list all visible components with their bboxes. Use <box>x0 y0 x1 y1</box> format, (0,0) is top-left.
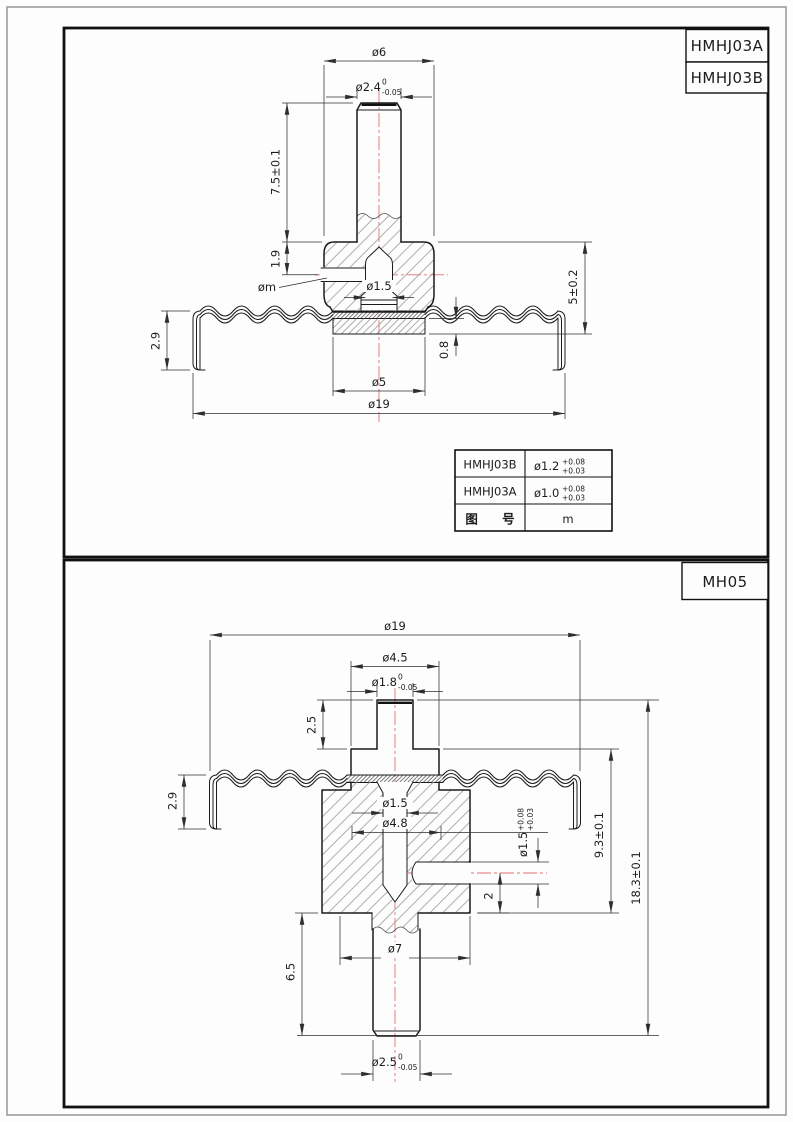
dim-dia15-side-upper-tol: +0.08 <box>517 808 526 831</box>
disc-left-rim <box>193 311 205 370</box>
table-value-1-upper-tol: +0.08 <box>562 458 585 467</box>
dim-6_5: 6.5 <box>284 913 319 1036</box>
table-value-2-lower-tol: +0.03 <box>562 494 585 503</box>
spec-table: HMHJ03B ø1.2 +0.08 +0.03 HMHJ03A ø1.0 +0… <box>455 450 612 531</box>
drawing-sheet: HMHJ03A HMHJ03B <box>0 0 793 1122</box>
title-mh05: MH05 <box>702 573 747 591</box>
dim-2_9: 2.9 <box>166 775 207 829</box>
table-value-1: ø1.2 <box>534 459 559 473</box>
dim-dia24-lower-tol: -0.05 <box>382 88 402 97</box>
table-value-2: ø1.0 <box>534 486 559 500</box>
dim-5-label: 5±0.2 <box>566 269 580 304</box>
dim-dia24-label: ø2.4 <box>356 80 381 94</box>
dim-2_5: 2.5 <box>305 700 374 749</box>
dim-dia15-label: ø1.5 <box>366 279 391 293</box>
dim-9_3-label: 9.3±0.1 <box>592 812 606 858</box>
dim-dia19-label: ø19 <box>368 397 390 411</box>
dim-dia18-label: ø1.8 <box>372 675 397 689</box>
dim-dia18-lower-tol: -0.05 <box>398 683 418 692</box>
panel-bottom: MH05 <box>64 560 768 1107</box>
dim-dia25-lower-tol: -0.05 <box>398 1063 418 1072</box>
dim-dia7-label: ø7 <box>388 942 402 956</box>
bottom-title-block: MH05 <box>682 563 768 600</box>
dim-2_9: 2.9 <box>149 311 191 370</box>
dim-7_5-label: 7.5±0.1 <box>269 149 283 195</box>
dim-1_9: 1.9 <box>269 242 319 275</box>
table-model-1: HMHJ03B <box>463 458 516 472</box>
dim-dm-label: øm <box>258 280 276 294</box>
table-value-3: m <box>562 512 573 526</box>
flange-section <box>333 319 425 335</box>
side-hole-fill <box>320 267 368 282</box>
dim-2_5-label: 2.5 <box>305 716 319 734</box>
dim-dia24-upper-tol: 0 <box>382 78 387 87</box>
panel-top: HMHJ03A HMHJ03B <box>64 28 768 557</box>
dim-dia45-label: ø4.5 <box>382 651 407 665</box>
dim-2_9-label: 2.9 <box>149 332 163 350</box>
dim-dm: øm <box>258 278 327 294</box>
side-hole-fill <box>412 863 471 883</box>
dim-dia19-label: ø19 <box>384 619 406 633</box>
dim-dia25-label: ø2.5 <box>372 1055 397 1069</box>
disc-right-rim <box>553 311 565 370</box>
dim-18_3-label: 18.3±0.1 <box>629 851 643 905</box>
dim-dia6-label: ø6 <box>372 45 386 59</box>
dim-6_5-label: 6.5 <box>284 963 298 981</box>
table-value-1-lower-tol: +0.03 <box>562 467 585 476</box>
dim-dia15-side-label: ø1.5 <box>516 832 530 857</box>
dim-dia5-label: ø5 <box>372 375 386 389</box>
dim-2: 2 <box>478 873 509 913</box>
title-hmhj03b: HMHJ03B <box>691 69 764 87</box>
dim-dia48-label: ø4.8 <box>382 816 407 830</box>
table-value-2-upper-tol: +0.08 <box>562 485 585 494</box>
table-model-3: 图 号 <box>465 512 524 527</box>
dim-2-label: 2 <box>482 892 496 899</box>
dim-dia18-upper-tol: 0 <box>398 673 403 682</box>
dim-7_5: 7.5±0.1 <box>269 103 354 242</box>
dim-1_9-label: 1.9 <box>269 250 283 268</box>
drawing-page: HMHJ03A HMHJ03B <box>0 0 793 1122</box>
table-model-2: HMHJ03A <box>463 485 516 499</box>
dim-2_9-label: 2.9 <box>166 792 180 810</box>
dim-dia25-upper-tol: 0 <box>398 1053 403 1062</box>
disc-clamped-band <box>347 775 443 783</box>
title-hmhj03a: HMHJ03A <box>691 37 764 55</box>
dim-dia15-bore-label: ø1.5 <box>382 796 407 810</box>
top-title-blocks: HMHJ03A HMHJ03B <box>686 30 768 94</box>
dim-dia25: ø2.5 0 -0.05 <box>341 1040 452 1081</box>
disc-right-rim <box>569 775 581 829</box>
disc-left-rim <box>210 775 222 829</box>
dim-dia15-side-lower-tol: +0.03 <box>526 808 535 831</box>
dim-0_8-label: 0.8 <box>437 341 451 359</box>
